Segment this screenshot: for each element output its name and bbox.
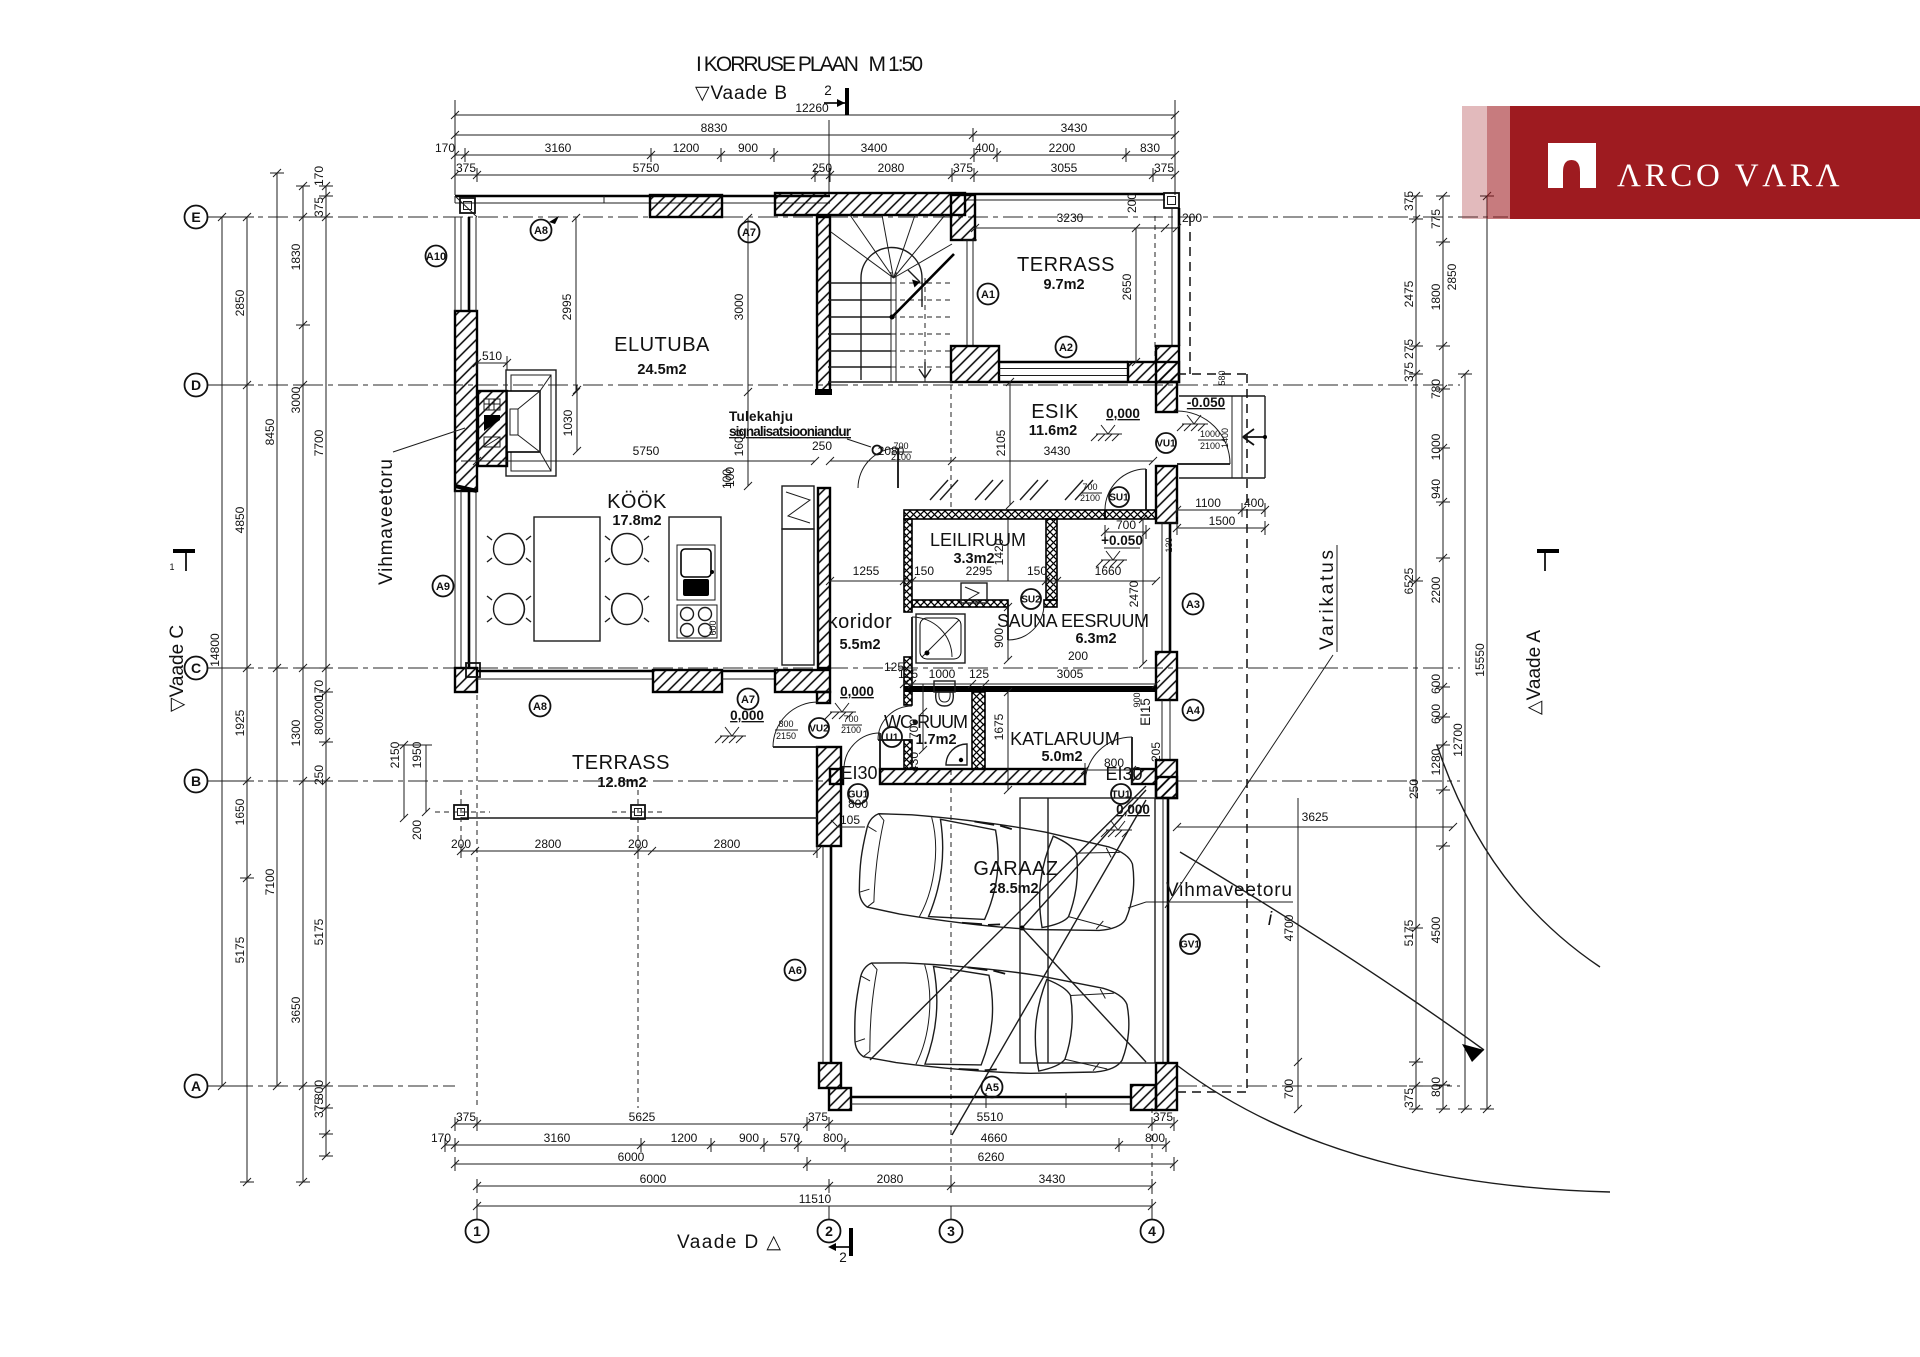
svg-text:1: 1 xyxy=(169,562,174,572)
svg-text:900: 900 xyxy=(738,141,758,155)
svg-text:0,000: 0,000 xyxy=(840,684,874,699)
svg-text:250: 250 xyxy=(812,161,832,175)
svg-text:700: 700 xyxy=(1082,482,1097,492)
svg-text:375: 375 xyxy=(808,1110,828,1124)
svg-text:2100: 2100 xyxy=(891,452,911,462)
svg-text:SAUNA EESRUUM: SAUNA EESRUUM xyxy=(997,611,1149,631)
svg-text:3: 3 xyxy=(947,1223,955,1239)
svg-text:3430: 3430 xyxy=(1044,444,1071,458)
svg-text:5750: 5750 xyxy=(633,444,660,458)
svg-text:205: 205 xyxy=(1149,742,1163,762)
svg-text:28.5m2: 28.5m2 xyxy=(989,881,1038,897)
svg-text:130: 130 xyxy=(1164,537,1174,552)
svg-text:GV1: GV1 xyxy=(1180,940,1200,951)
svg-text:125: 125 xyxy=(969,667,989,681)
svg-text:SU1: SU1 xyxy=(1109,493,1129,504)
svg-text:0,000: 0,000 xyxy=(1106,406,1140,421)
svg-text:580: 580 xyxy=(1217,370,1227,385)
svg-text:6000: 6000 xyxy=(640,1172,667,1186)
svg-text:800: 800 xyxy=(312,1080,326,1100)
svg-text:A6: A6 xyxy=(788,965,802,977)
svg-text:1: 1 xyxy=(473,1223,481,1239)
svg-text:4850: 4850 xyxy=(233,506,247,533)
svg-text:2800: 2800 xyxy=(535,837,562,851)
svg-text:1300: 1300 xyxy=(289,719,303,746)
svg-text:800: 800 xyxy=(1145,1131,1165,1145)
svg-text:800: 800 xyxy=(312,715,326,735)
svg-text:A8: A8 xyxy=(533,701,547,713)
svg-text:800: 800 xyxy=(848,797,868,811)
svg-text:4660: 4660 xyxy=(981,1131,1008,1145)
svg-text:2100: 2100 xyxy=(1200,441,1220,451)
svg-text:17.8m2: 17.8m2 xyxy=(612,513,661,529)
svg-text:6.3m2: 6.3m2 xyxy=(1075,631,1116,647)
svg-text:1200: 1200 xyxy=(673,141,700,155)
svg-text:KATLARUUM: KATLARUUM xyxy=(1010,729,1120,749)
svg-text:375: 375 xyxy=(312,197,326,217)
svg-text:800: 800 xyxy=(778,719,793,729)
svg-text:11510: 11510 xyxy=(799,1192,832,1206)
svg-text:375: 375 xyxy=(456,1110,476,1124)
svg-text:TERRASS: TERRASS xyxy=(1017,254,1115,276)
svg-text:A1: A1 xyxy=(981,289,995,301)
svg-text:Varikatus: Varikatus xyxy=(1317,550,1338,650)
svg-text:700: 700 xyxy=(1116,518,1136,532)
svg-text:150: 150 xyxy=(914,564,934,578)
svg-text:2800: 2800 xyxy=(714,837,741,851)
svg-text:1000: 1000 xyxy=(929,667,956,681)
svg-text:ΛRCO VΛRΛ: ΛRCO VΛRΛ xyxy=(1617,158,1845,194)
svg-text:250: 250 xyxy=(1407,779,1421,799)
svg-text:2850: 2850 xyxy=(1445,263,1459,290)
svg-text:1675: 1675 xyxy=(992,713,1006,740)
svg-text:A10: A10 xyxy=(426,251,446,263)
svg-text:1950: 1950 xyxy=(410,741,424,768)
svg-text:1000: 1000 xyxy=(1200,429,1220,439)
svg-text:1830: 1830 xyxy=(289,243,303,270)
svg-text:ESIK: ESIK xyxy=(1031,401,1079,423)
svg-text:9.7m2: 9.7m2 xyxy=(1043,277,1084,293)
svg-text:3000: 3000 xyxy=(289,386,303,413)
svg-text:400: 400 xyxy=(1244,496,1264,510)
svg-text:C: C xyxy=(191,660,201,676)
svg-text:125: 125 xyxy=(884,660,904,674)
svg-text:▽Vaade B: ▽Vaade B xyxy=(695,83,787,104)
svg-text:900: 900 xyxy=(739,1131,759,1145)
svg-text:A8: A8 xyxy=(534,225,548,237)
svg-text:ELUTUBA: ELUTUBA xyxy=(614,334,710,356)
svg-text:900: 900 xyxy=(1132,692,1142,707)
svg-text:2105: 2105 xyxy=(994,429,1008,456)
svg-text:2100: 2100 xyxy=(841,725,861,735)
svg-text:7700: 7700 xyxy=(312,429,326,456)
svg-text:2080: 2080 xyxy=(878,161,905,175)
svg-text:3160: 3160 xyxy=(544,1131,571,1145)
svg-text:A3: A3 xyxy=(1186,599,1200,611)
svg-text:VU1: VU1 xyxy=(1156,439,1176,450)
svg-text:SU2: SU2 xyxy=(1021,595,1041,606)
svg-text:A2: A2 xyxy=(1059,342,1073,354)
svg-text:▽Vaade C: ▽Vaade C xyxy=(167,625,188,712)
svg-text:2150: 2150 xyxy=(776,731,796,741)
svg-text:4500: 4500 xyxy=(1429,916,1443,943)
svg-text:375: 375 xyxy=(953,161,973,175)
svg-text:1400: 1400 xyxy=(1220,428,1230,448)
svg-text:12.8m2: 12.8m2 xyxy=(597,775,646,791)
svg-text:1030: 1030 xyxy=(561,409,575,436)
svg-text:koridor: koridor xyxy=(828,611,893,633)
svg-text:2: 2 xyxy=(825,1223,833,1239)
svg-text:100: 100 xyxy=(720,469,734,489)
svg-text:700: 700 xyxy=(843,714,858,724)
svg-text:600: 600 xyxy=(1429,704,1443,724)
svg-text:1255: 1255 xyxy=(853,564,880,578)
svg-text:△Vaade A: △Vaade A xyxy=(1524,630,1545,715)
svg-text:2100: 2100 xyxy=(1080,493,1100,503)
svg-text:VU2: VU2 xyxy=(809,724,829,735)
svg-text:6000: 6000 xyxy=(618,1150,645,1164)
svg-text:5175: 5175 xyxy=(233,936,247,963)
svg-text:5175: 5175 xyxy=(312,918,326,945)
svg-text:430: 430 xyxy=(907,752,921,772)
svg-text:375: 375 xyxy=(1402,1088,1416,1108)
svg-text:375: 375 xyxy=(1402,362,1416,382)
svg-text:+0.050: +0.050 xyxy=(1101,533,1143,548)
svg-text:I KORRUSE PLAAN M 1:50: I KORRUSE PLAAN M 1:50 xyxy=(696,53,924,76)
svg-text:3430: 3430 xyxy=(1039,1172,1066,1186)
svg-text:A9: A9 xyxy=(436,581,450,593)
svg-text:800: 800 xyxy=(823,1131,843,1145)
svg-text:6525: 6525 xyxy=(1402,567,1416,594)
svg-text:A7: A7 xyxy=(742,227,756,239)
svg-text:800: 800 xyxy=(1429,1077,1443,1097)
svg-text:4: 4 xyxy=(1148,1223,1156,1239)
svg-text:A5: A5 xyxy=(985,1082,999,1094)
svg-text:600: 600 xyxy=(708,620,718,635)
svg-text:-0.050: -0.050 xyxy=(1187,395,1225,410)
svg-text:600: 600 xyxy=(1429,674,1443,694)
svg-text:KÖÖK: KÖÖK xyxy=(607,491,667,513)
svg-text:5.0m2: 5.0m2 xyxy=(1041,749,1082,765)
svg-text:12700: 12700 xyxy=(1451,723,1465,757)
svg-text:Vihmaveetoru: Vihmaveetoru xyxy=(376,459,397,585)
svg-text:2: 2 xyxy=(839,1250,847,1265)
svg-text:LEILIRUUM: LEILIRUUM xyxy=(930,530,1026,550)
svg-text:6260: 6260 xyxy=(978,1150,1005,1164)
svg-text:5175: 5175 xyxy=(1402,919,1416,946)
svg-text:3055: 3055 xyxy=(1051,161,1078,175)
svg-text:3625: 3625 xyxy=(1302,810,1329,824)
svg-text:1280: 1280 xyxy=(1429,748,1443,775)
svg-text:2150: 2150 xyxy=(388,741,402,768)
svg-text:5625: 5625 xyxy=(629,1110,656,1124)
svg-text:830: 830 xyxy=(1140,141,1160,155)
svg-text:EI30: EI30 xyxy=(1105,764,1142,784)
svg-text:1650: 1650 xyxy=(233,798,247,825)
svg-text:170: 170 xyxy=(312,166,326,186)
svg-text:A4: A4 xyxy=(1186,705,1201,717)
svg-text:2200: 2200 xyxy=(1429,576,1443,603)
svg-text:2650: 2650 xyxy=(1120,273,1134,300)
svg-text:200: 200 xyxy=(410,820,424,840)
svg-text:375: 375 xyxy=(312,1098,326,1118)
svg-text:24.5m2: 24.5m2 xyxy=(637,362,686,378)
svg-text:1100: 1100 xyxy=(1195,496,1221,510)
svg-text:700: 700 xyxy=(1282,1079,1296,1099)
svg-text:8830: 8830 xyxy=(701,121,728,135)
svg-text:E: E xyxy=(191,209,200,225)
svg-text:1800: 1800 xyxy=(1429,283,1443,310)
svg-text:2: 2 xyxy=(824,83,832,98)
svg-text:7100: 7100 xyxy=(263,868,277,895)
svg-text:11.6m2: 11.6m2 xyxy=(1029,423,1077,439)
svg-text:775: 775 xyxy=(1429,209,1443,229)
svg-text:3230: 3230 xyxy=(1057,211,1084,225)
svg-text:TERRASS: TERRASS xyxy=(572,752,670,774)
svg-text:375: 375 xyxy=(1402,191,1416,211)
svg-text:1925: 1925 xyxy=(233,709,247,736)
svg-text:12260: 12260 xyxy=(795,101,829,115)
svg-text:5750: 5750 xyxy=(633,161,660,175)
svg-text:2475: 2475 xyxy=(1402,280,1416,307)
svg-text:250: 250 xyxy=(312,765,326,785)
svg-text:3005: 3005 xyxy=(1057,667,1084,681)
svg-text:105: 105 xyxy=(840,813,860,827)
svg-text:375: 375 xyxy=(1153,1110,1173,1124)
svg-text:5510: 5510 xyxy=(977,1110,1004,1124)
svg-text:275: 275 xyxy=(1402,339,1416,359)
svg-text:200: 200 xyxy=(1125,193,1139,213)
svg-text:375: 375 xyxy=(456,161,476,175)
svg-text:1.7m2: 1.7m2 xyxy=(915,732,956,748)
svg-text:3650: 3650 xyxy=(289,996,303,1023)
svg-text:150: 150 xyxy=(1027,564,1047,578)
svg-text:200: 200 xyxy=(1182,211,1202,225)
svg-text:400: 400 xyxy=(975,141,995,155)
svg-text:Vaade D △: Vaade D △ xyxy=(677,1232,781,1253)
svg-text:signalisatsiooniandur: signalisatsiooniandur xyxy=(729,424,852,439)
svg-text:14800: 14800 xyxy=(208,633,222,667)
svg-text:2470: 2470 xyxy=(1127,580,1141,607)
svg-text:15550: 15550 xyxy=(1473,643,1487,677)
svg-text:200: 200 xyxy=(312,695,326,715)
svg-text:1500: 1500 xyxy=(1209,514,1236,528)
svg-text:170: 170 xyxy=(431,1131,451,1145)
svg-text:5.5m2: 5.5m2 xyxy=(839,637,880,653)
svg-text:3400: 3400 xyxy=(861,141,888,155)
svg-text:200: 200 xyxy=(1068,649,1088,663)
svg-text:2995: 2995 xyxy=(560,293,574,320)
svg-text:8450: 8450 xyxy=(263,418,277,445)
svg-text:2850: 2850 xyxy=(233,289,247,316)
svg-text:GARAAZ: GARAAZ xyxy=(973,858,1058,880)
svg-text:250: 250 xyxy=(812,439,832,453)
svg-text:B: B xyxy=(191,773,201,789)
svg-text:2200: 2200 xyxy=(1049,141,1076,155)
svg-text:375: 375 xyxy=(1154,161,1174,175)
svg-text:D: D xyxy=(191,377,201,393)
svg-text:TU1: TU1 xyxy=(1112,790,1131,801)
svg-text:A: A xyxy=(191,1078,201,1094)
svg-text:3430: 3430 xyxy=(1061,121,1088,135)
svg-text:U1: U1 xyxy=(886,733,899,744)
svg-text:Vihmaveetoru: Vihmaveetoru xyxy=(1166,880,1292,901)
svg-text:EI30: EI30 xyxy=(840,763,877,783)
svg-text:3000: 3000 xyxy=(732,293,746,320)
svg-text:170: 170 xyxy=(435,141,455,155)
svg-text:1000: 1000 xyxy=(1429,433,1443,460)
svg-text:2080: 2080 xyxy=(877,1172,904,1186)
svg-text:Tulekahju: Tulekahju xyxy=(729,409,793,424)
svg-text:700: 700 xyxy=(893,441,908,451)
svg-text:3.3m2: 3.3m2 xyxy=(953,551,994,567)
svg-text:1200: 1200 xyxy=(671,1131,698,1145)
svg-text:510: 510 xyxy=(482,349,502,363)
svg-text:940: 940 xyxy=(1429,479,1443,499)
svg-text:570: 570 xyxy=(780,1131,800,1145)
svg-text:A7: A7 xyxy=(741,694,755,706)
svg-text:3160: 3160 xyxy=(545,141,572,155)
svg-text:780: 780 xyxy=(1429,379,1443,399)
